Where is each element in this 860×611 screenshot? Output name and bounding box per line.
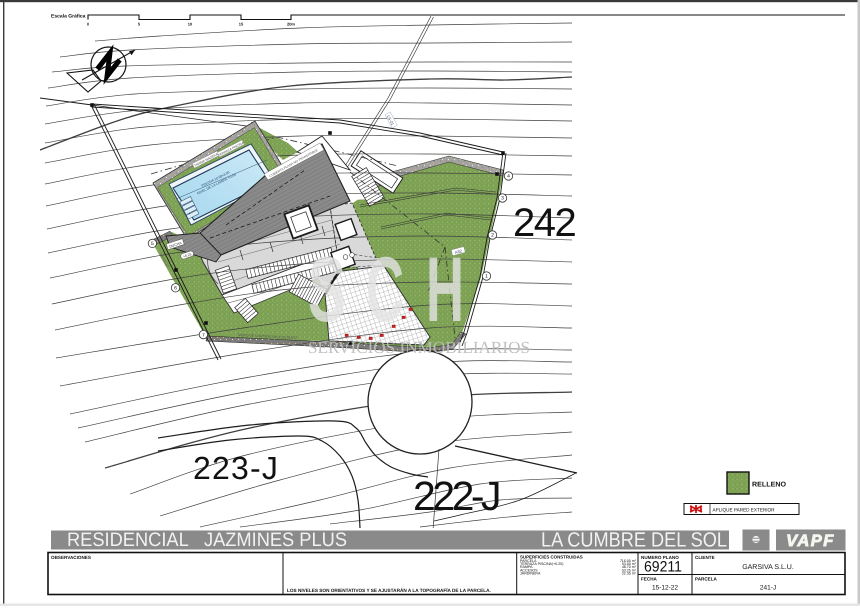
svg-text:CLIENTE: CLIENTE <box>695 555 715 560</box>
svg-text:223-J: 223-J <box>193 450 279 486</box>
svg-text:69211: 69211 <box>644 559 682 576</box>
svg-text:22.35 m²: 22.35 m² <box>622 571 637 575</box>
svg-text:H: H <box>426 239 464 341</box>
svg-text:C: C <box>366 239 404 341</box>
svg-text:PARCELA: PARCELA <box>695 577 718 582</box>
svg-text:S: S <box>308 239 346 341</box>
svg-text:7: 7 <box>202 332 205 338</box>
svg-text:VAPF: VAPF <box>786 532 835 550</box>
svg-text:6: 6 <box>174 286 177 292</box>
svg-text:4: 4 <box>507 174 510 180</box>
svg-text:LA CUMBRE DEL SOL: LA CUMBRE DEL SOL <box>541 529 727 552</box>
svg-text:242: 242 <box>513 201 575 245</box>
svg-text:5: 5 <box>151 241 154 247</box>
svg-text:20m: 20m <box>287 22 295 27</box>
svg-text:GARSIVA S.L.U.: GARSIVA S.L.U. <box>742 564 794 571</box>
svg-text:APLIQUE PARED EXTERIOR: APLIQUE PARED EXTERIOR <box>713 507 775 513</box>
svg-text:15: 15 <box>239 22 244 27</box>
svg-text:LOS NIVELES SON ORIENTATIVOS Y: LOS NIVELES SON ORIENTATIVOS Y SE AJUSTA… <box>287 587 491 593</box>
svg-text:10: 10 <box>188 22 193 27</box>
svg-text:15-12-22: 15-12-22 <box>652 585 678 592</box>
svg-text:241-J: 241-J <box>760 585 776 592</box>
svg-text:2: 2 <box>491 233 494 239</box>
svg-text:FECHA: FECHA <box>641 577 658 582</box>
svg-text:JARDINERA: JARDINERA <box>520 571 541 575</box>
svg-text:RELLENO: RELLENO <box>752 482 787 489</box>
svg-text:1: 1 <box>485 274 488 280</box>
svg-text:RESIDENCIAL JAZMINES PLUS: RESIDENCIAL JAZMINES PLUS <box>67 529 347 551</box>
svg-text:OBSERVACIONES: OBSERVACIONES <box>51 555 91 560</box>
svg-text:Escala Gráfica: Escala Gráfica <box>51 14 86 20</box>
svg-text:3: 3 <box>501 196 504 202</box>
svg-text:SERVICIOS INMOBILIARIOS: SERVICIOS INMOBILIARIOS <box>308 338 530 357</box>
svg-text:222-J: 222-J <box>413 473 499 519</box>
